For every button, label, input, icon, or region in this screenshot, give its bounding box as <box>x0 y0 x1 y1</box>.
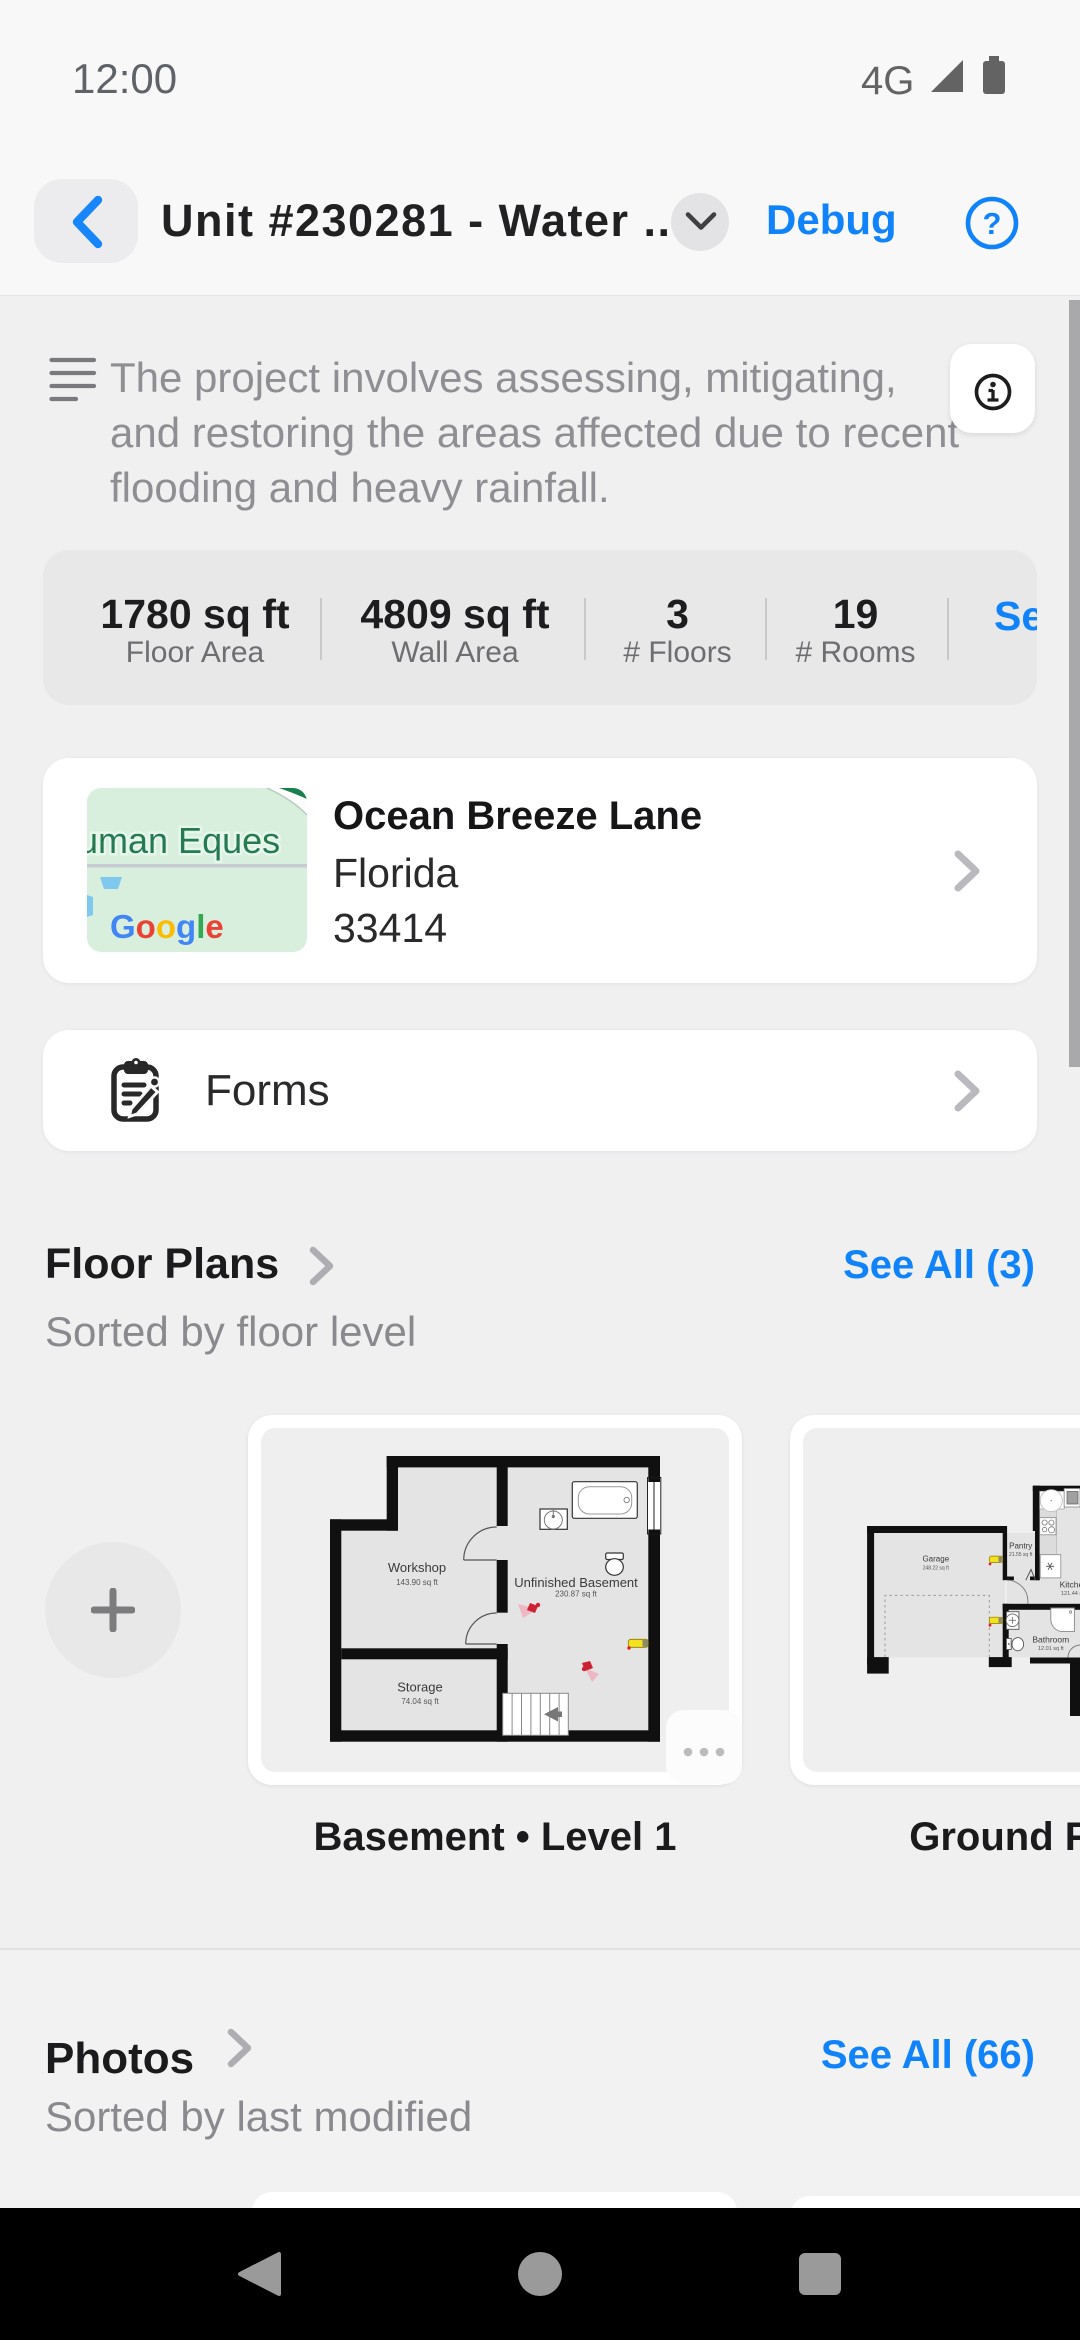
svg-text:Garage: Garage <box>922 1555 949 1564</box>
svg-text:21.55 sq ft: 21.55 sq ft <box>1009 1552 1033 1558</box>
svg-text:Storage: Storage <box>397 1680 443 1695</box>
svg-text:230.87 sq ft: 230.87 sq ft <box>555 1590 598 1599</box>
svg-text:Google: Google <box>110 908 224 945</box>
svg-text:Unfinished Basement: Unfinished Basement <box>514 1575 638 1590</box>
svg-text:121.44 sq ft: 121.44 sq ft <box>1061 1591 1080 1597</box>
svg-text:Bathroom: Bathroom <box>1032 1635 1069 1645</box>
svg-text:Pantry: Pantry <box>1009 1542 1032 1551</box>
svg-text:143.90 sq ft: 143.90 sq ft <box>396 1578 439 1587</box>
svg-text:Workshop: Workshop <box>388 1560 446 1575</box>
svg-text:248.22 sq ft: 248.22 sq ft <box>923 1566 950 1572</box>
svg-text:?: ? <box>983 206 1002 241</box>
svg-text:12.01 sq ft: 12.01 sq ft <box>1038 1646 1064 1652</box>
svg-text:Kitchen: Kitchen <box>1060 1580 1080 1590</box>
svg-text:74.04 sq ft: 74.04 sq ft <box>401 1697 439 1706</box>
svg-text:4G: 4G <box>861 59 914 102</box>
svg-text:uman Eques: uman Eques <box>87 820 280 861</box>
